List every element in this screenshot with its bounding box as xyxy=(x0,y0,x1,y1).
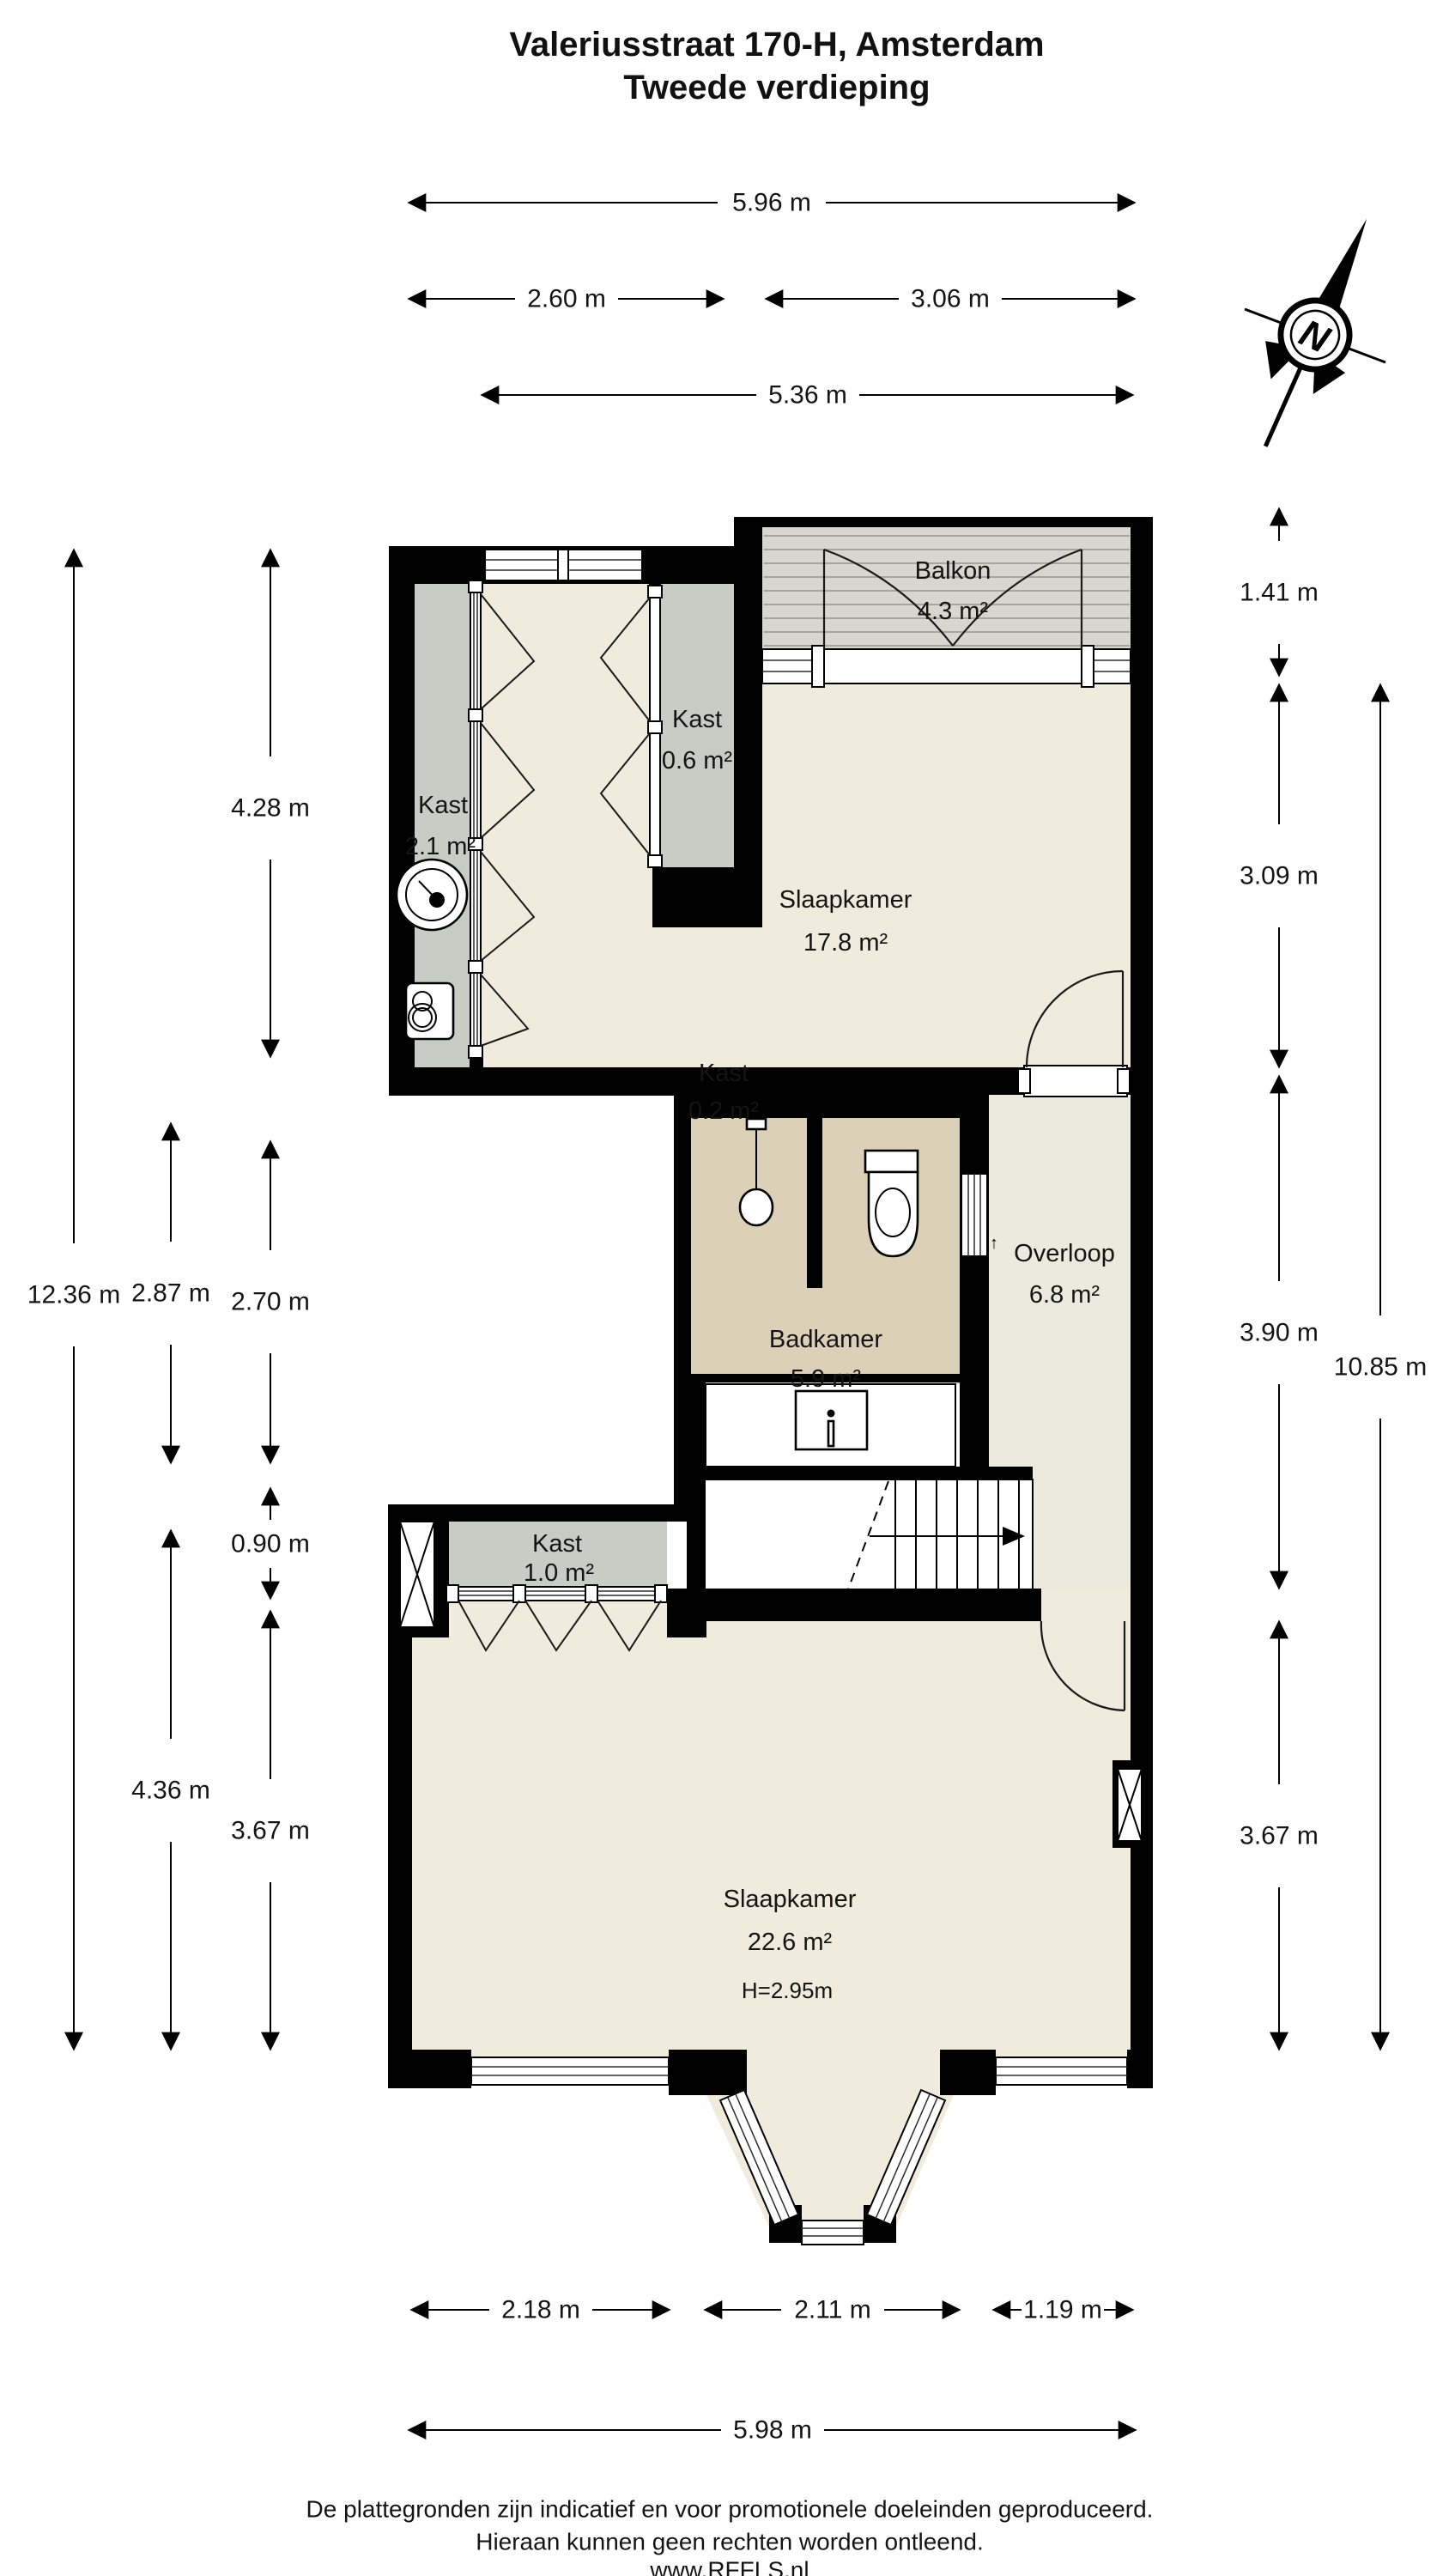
wall xyxy=(667,1589,1041,1621)
door-jamb xyxy=(469,709,482,721)
dimension-label: 3.90 m xyxy=(1240,1319,1319,1347)
dimension-label: 4.36 m xyxy=(131,1777,210,1805)
room-label-kast-left: Kast xyxy=(418,792,468,819)
door-jamb xyxy=(648,586,662,598)
window-mullion xyxy=(558,550,568,580)
washing-machine-icon xyxy=(397,860,467,930)
door-jamb xyxy=(513,1585,525,1602)
footer-disclaimer-line2: Hieraan kunnen geen rechten worden ontle… xyxy=(476,2529,984,2555)
door-jamb xyxy=(469,1046,482,1058)
boiler-icon xyxy=(406,983,453,1039)
wall xyxy=(667,1589,706,1637)
dimension-label: 2.70 m xyxy=(231,1288,310,1316)
dimension-label: 5.98 m xyxy=(733,2416,812,2445)
dimension-label: 4.28 m xyxy=(231,794,310,823)
room-area-kast-top: 0.6 m² xyxy=(662,747,733,775)
dimension-label: 2.87 m xyxy=(131,1279,210,1308)
room-area-balkon: 4.3 m² xyxy=(918,598,989,625)
door-jamb xyxy=(648,721,662,733)
footer-website: www.RFFLS.nl xyxy=(649,2557,809,2576)
dimension-label: 2.11 m xyxy=(794,2296,871,2324)
door-jamb xyxy=(812,646,824,687)
dimension-label: 2.60 m xyxy=(527,285,606,313)
room-label-slaapkamer1: Slaapkamer xyxy=(779,886,912,914)
door-opening xyxy=(1024,1066,1127,1097)
room-height-slaapkamer2: H=2.95m xyxy=(742,1978,833,2003)
dimension-label: 1.41 m xyxy=(1240,579,1319,607)
north-arrow-icon: N xyxy=(1227,201,1406,464)
dimension-label: 5.96 m xyxy=(732,189,811,217)
door-jamb xyxy=(648,855,662,867)
wall xyxy=(1131,517,1153,2088)
floorplan-page: Valeriusstraat 170-H, Amsterdam Tweede v… xyxy=(0,0,1449,2576)
room-label-kast-top: Kast xyxy=(672,706,722,733)
door-jamb xyxy=(1018,1069,1030,1093)
window xyxy=(471,2057,669,2085)
shower-icon xyxy=(796,1391,867,1449)
wall xyxy=(940,2050,996,2095)
chimney-shaft-icon xyxy=(1118,1769,1142,1841)
window-bay-bottom xyxy=(802,2221,864,2245)
wall xyxy=(388,1637,412,2088)
dimension-label: 0.90 m xyxy=(231,1530,310,1558)
wall xyxy=(734,517,762,867)
door-jamb xyxy=(469,961,482,973)
room-label-kast-mini: Kast xyxy=(699,1060,749,1087)
room-label-kast-hal: Kast xyxy=(532,1530,582,1558)
room-area-slaapkamer1: 17.8 m² xyxy=(803,929,888,957)
dimension-label: 3.67 m xyxy=(231,1817,310,1845)
wall xyxy=(1127,2050,1153,2088)
dimension-label: 2.18 m xyxy=(501,2296,580,2324)
door-jamb xyxy=(655,1585,667,1602)
room-area-kast-left: 2.1 m² xyxy=(405,833,476,860)
room-label-balkon: Balkon xyxy=(915,557,991,585)
dimension-label: 12.36 m xyxy=(27,1281,120,1309)
door-jamb xyxy=(446,1585,458,1602)
room-area-overloop: 6.8 m² xyxy=(1029,1281,1100,1309)
wall xyxy=(691,1467,1033,1479)
room-area-kast-hal: 1.0 m² xyxy=(524,1559,595,1587)
wall xyxy=(960,1118,989,1470)
closet-door-track xyxy=(470,580,481,1058)
room-area-kast-mini: 0.2 m² xyxy=(688,1097,760,1125)
room-label-slaapkamer2: Slaapkamer xyxy=(724,1886,857,1913)
footer-disclaimer-line1: De plattegronden zijn indicatief en voor… xyxy=(306,2496,1154,2523)
room-area-badkamer: 5.9 m² xyxy=(791,1365,862,1393)
room-label-overloop: Overloop xyxy=(1014,1240,1115,1267)
room-area-slaapkamer2: 22.6 m² xyxy=(748,1929,833,1956)
chimney-shaft-icon xyxy=(400,1522,434,1627)
closet-door-track xyxy=(449,1587,667,1601)
dimension-label: 3.06 m xyxy=(911,285,990,313)
window xyxy=(996,2057,1127,2085)
dimension-label: 5.36 m xyxy=(768,381,847,410)
dimension-label: 3.09 m xyxy=(1240,862,1319,890)
wall xyxy=(652,867,762,927)
wall xyxy=(687,1378,706,1591)
dimension-label: 1.19 m xyxy=(1023,2296,1102,2324)
tiny-arrow-mark: ↑ xyxy=(990,1234,998,1253)
door-jamb xyxy=(1082,646,1094,687)
page-title-line1: Valeriusstraat 170-H, Amsterdam xyxy=(509,26,1044,64)
page-title-line2: Tweede verdieping xyxy=(623,69,930,106)
door-jamb xyxy=(585,1585,597,1602)
floor-balkon-deck xyxy=(762,526,1131,653)
wall xyxy=(669,2050,747,2095)
toilet-icon xyxy=(865,1151,918,1256)
wall xyxy=(389,1067,691,1096)
dimension-label: 10.85 m xyxy=(1334,1353,1427,1382)
wall xyxy=(762,517,1153,527)
dimension-label: 3.67 m xyxy=(1240,1822,1319,1850)
room-label-badkamer: Badkamer xyxy=(769,1326,883,1353)
door-jamb xyxy=(469,580,482,592)
wall xyxy=(807,1118,822,1288)
floorplan-svg: Valeriusstraat 170-H, Amsterdam Tweede v… xyxy=(0,0,1449,2576)
door-jamb xyxy=(1118,1069,1130,1093)
wall xyxy=(388,2050,471,2088)
